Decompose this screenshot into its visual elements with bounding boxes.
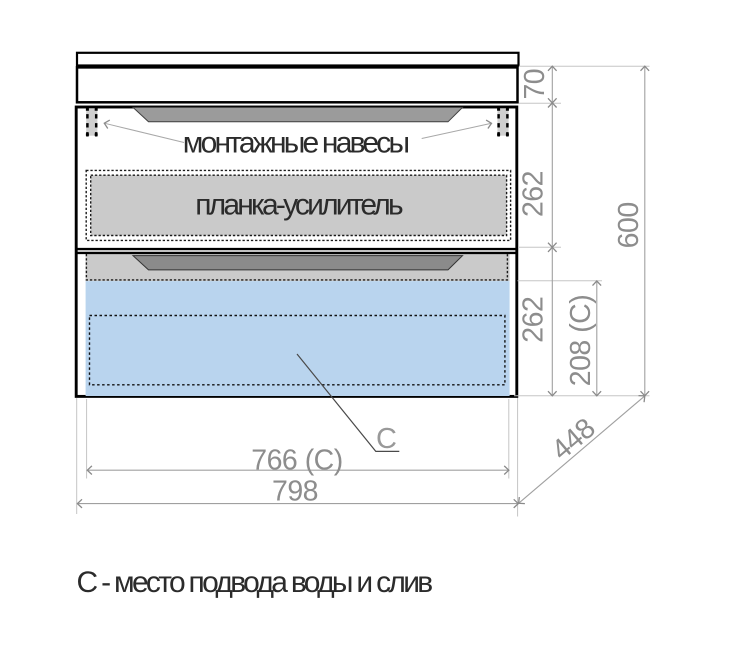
svg-text:262: 262 xyxy=(518,171,550,217)
svg-text:70: 70 xyxy=(519,69,551,100)
svg-text:С - место подвода воды и слив: С - место подвода воды и слив xyxy=(77,566,433,599)
svg-text:монтажные навесы: монтажные навесы xyxy=(183,127,409,160)
svg-text:С: С xyxy=(376,423,397,455)
svg-text:208 (С): 208 (С) xyxy=(565,295,597,387)
svg-text:766 (С): 766 (С) xyxy=(251,445,343,477)
svg-text:262: 262 xyxy=(518,297,550,343)
svg-text:600: 600 xyxy=(613,202,645,248)
svg-text:798: 798 xyxy=(272,476,318,508)
svg-text:планка-усилитель: планка-усилитель xyxy=(195,189,403,222)
